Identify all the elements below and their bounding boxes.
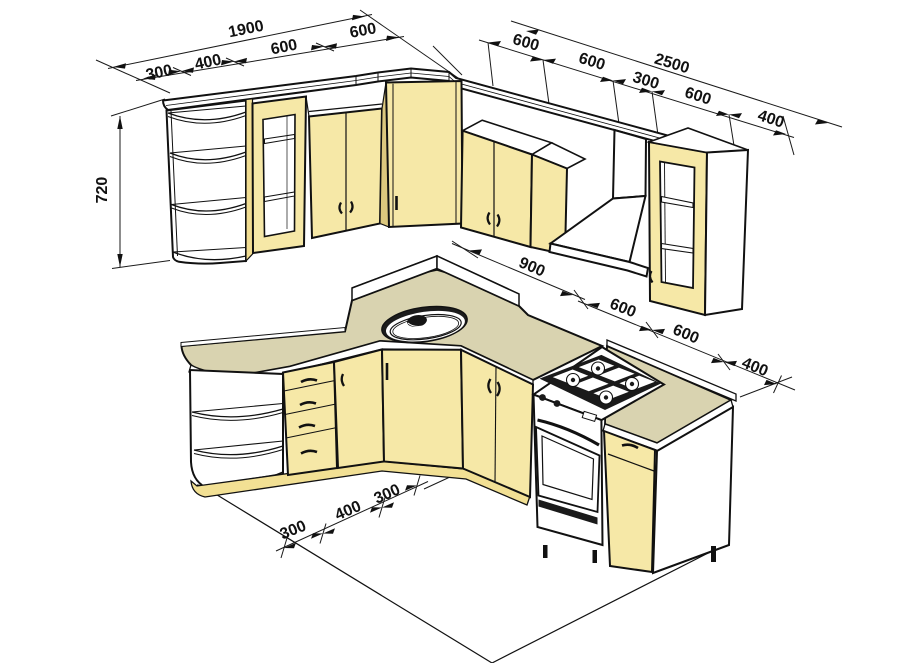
svg-text:720: 720 [94, 177, 111, 204]
